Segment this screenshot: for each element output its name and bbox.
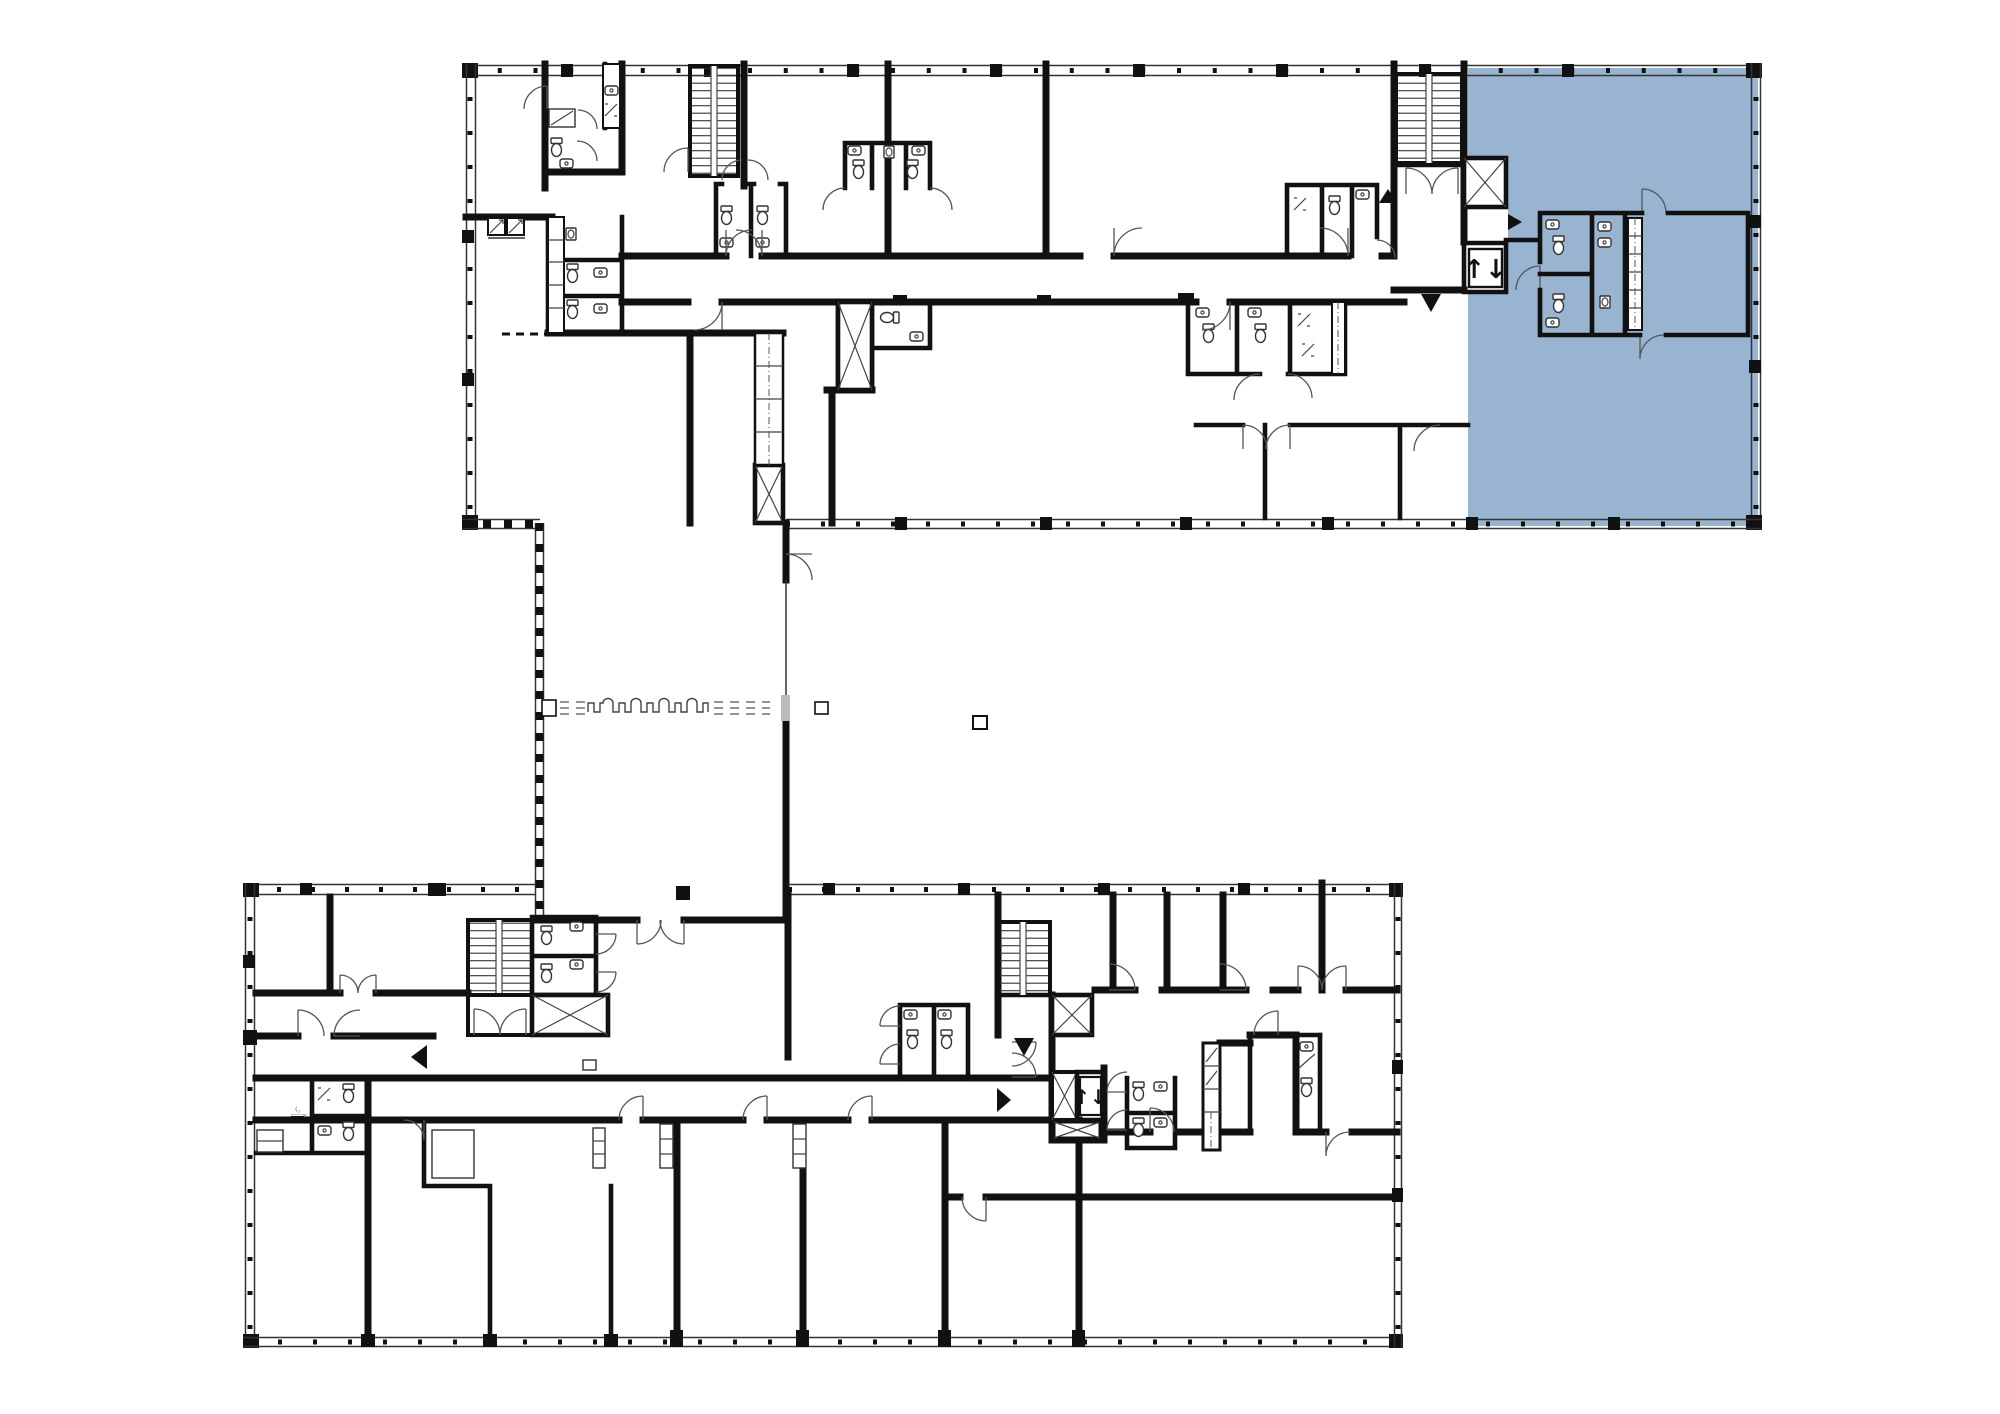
entrance-triangle-down: [1421, 294, 1441, 312]
north-wing-walls: [466, 64, 1464, 523]
toilets-southwest: [532, 917, 616, 1070]
south-wing-facade: [243, 883, 1403, 1348]
toilet-icon: [941, 1030, 952, 1049]
toilet-icon: [757, 206, 768, 225]
stairwell-northwest: [690, 66, 738, 176]
shower-icon: [1302, 344, 1314, 356]
toilet-icon: [343, 1122, 354, 1141]
sink-icon: [1196, 308, 1209, 317]
svg-text:☕: ☕: [288, 1103, 308, 1128]
toilet-icon: [567, 264, 578, 283]
door-leaf: [781, 695, 790, 721]
table-icon: [432, 1130, 474, 1178]
sink-icon: [1356, 190, 1369, 199]
sink-icon: [560, 159, 573, 168]
sink-icon: [1248, 308, 1261, 317]
toilet-icon: [541, 964, 552, 983]
sink-icon: [594, 268, 607, 277]
sink-icon: [594, 304, 607, 313]
toilet-icon: [907, 1030, 918, 1049]
toilet-icon: [881, 312, 900, 323]
sink-icon: [904, 1010, 917, 1019]
south-wing: ↑↓ ☕: [243, 883, 1403, 1348]
doors-south: [298, 964, 1350, 1221]
sink-icon: [848, 146, 861, 155]
shower-icon: [1298, 314, 1310, 326]
sink-icon: [1598, 222, 1611, 231]
sink-icon: [1154, 1082, 1167, 1091]
toilet-icon: [1301, 1078, 1312, 1097]
door-arc: [786, 554, 812, 580]
toilet-icon: [1133, 1082, 1144, 1101]
sink-icon: [318, 1126, 331, 1135]
elevator-up-down-icon: ↑↓: [1463, 243, 1507, 292]
floor-plan-page: ↑↓: [0, 0, 2000, 1414]
sink-icon: [1598, 238, 1611, 247]
sink-icon: [570, 960, 583, 969]
toilet-icon: [1553, 294, 1564, 313]
sink-icon: [583, 1060, 596, 1070]
sink-icon: [938, 1010, 951, 1019]
riser-boxes: [488, 218, 525, 238]
toilet-icon: [1553, 236, 1564, 255]
svg-text:↑↓: ↑↓: [1073, 1085, 1107, 1109]
svg-text:↑↓: ↑↓: [1463, 255, 1507, 285]
toilet-icon: [567, 300, 578, 319]
toilet-icon: [541, 926, 552, 945]
floor-plan: ↑↓: [0, 0, 2000, 1414]
sink-icon: [570, 922, 583, 931]
sink-icon: [910, 332, 923, 341]
freestanding-column: [973, 716, 987, 729]
toilet-icon: [853, 160, 864, 179]
toilet-icon: [721, 206, 732, 225]
toilet-icon: [1329, 196, 1340, 215]
connector-atrium: [536, 523, 988, 944]
double-door: [637, 920, 684, 944]
highlighted-unit[interactable]: [1468, 68, 1758, 526]
elevator-up-down-icon-south: ↑↓: [1073, 1072, 1107, 1120]
sink-icon: [605, 86, 618, 95]
column: [676, 886, 690, 900]
north-wing-partitions: [548, 64, 1468, 518]
toilet-icon: [1203, 324, 1214, 343]
sink-icon: [912, 146, 925, 155]
sink-icon: [1546, 220, 1559, 229]
toilet-icon: [551, 138, 562, 157]
stairwell-southeast: [998, 922, 1050, 995]
stairwell-southwest: [468, 920, 532, 1035]
toilet-icon: [1133, 1118, 1144, 1137]
service-shafts: [548, 64, 1345, 465]
toilet-icon: [907, 160, 918, 179]
urinal-icon: [1600, 296, 1610, 308]
south-wing-walls: [256, 883, 1397, 1341]
toilet-icon: [343, 1084, 354, 1103]
sidelight-windows: [593, 1124, 806, 1168]
sanitary-fixtures-north: [549, 86, 1369, 356]
shower-icon: [318, 1088, 330, 1100]
entrance-triangle-left: [411, 1045, 427, 1069]
entrance-triangle-right-south: [997, 1088, 1011, 1112]
toilet-icon: [1255, 324, 1266, 343]
stairwell-northeast: [1396, 74, 1462, 163]
sink-icon: [1154, 1118, 1167, 1127]
shower-icon: [1294, 198, 1306, 210]
urinal-icon: [566, 228, 576, 240]
urinal-icon: [884, 146, 894, 158]
sink-icon: [1300, 1042, 1313, 1051]
sink-icon: [1546, 318, 1559, 327]
